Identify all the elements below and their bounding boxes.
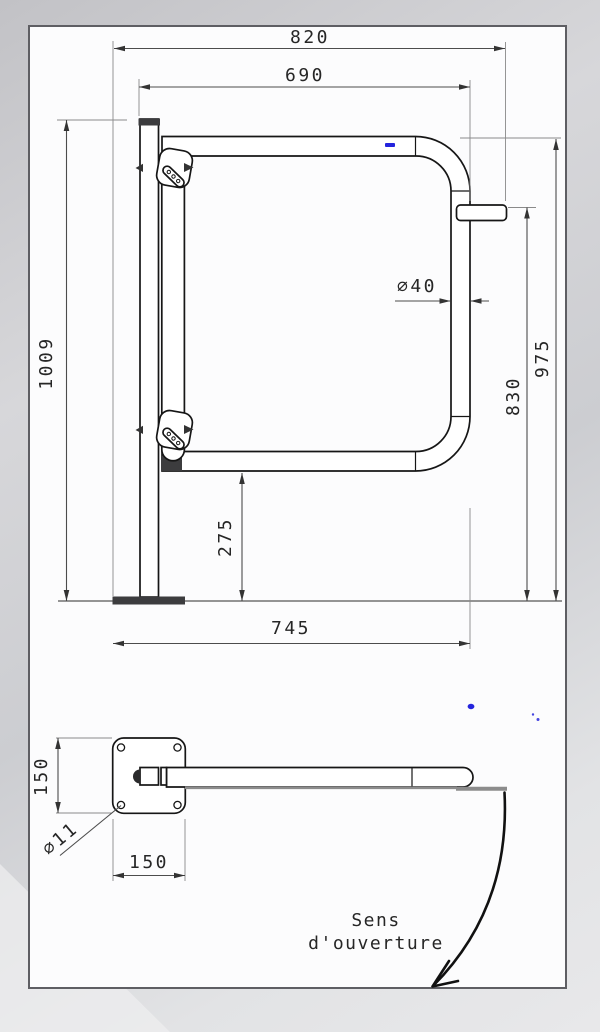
dim-text-d11: ⌀11 <box>38 818 82 860</box>
dim-text-150-left: 150 <box>31 756 52 796</box>
opening-direction-arrow <box>433 793 505 987</box>
gate-arm-plan <box>167 768 474 788</box>
dim-text-745: 745 <box>271 618 311 639</box>
post-section <box>140 768 159 786</box>
dim-plate-width: 150 <box>113 819 185 881</box>
blue-mark <box>385 143 395 147</box>
support-post <box>140 119 159 597</box>
blue-specks <box>468 704 540 721</box>
dim-text-975: 975 <box>532 338 553 378</box>
plan-view: 150 150 ⌀11 Sens <box>31 704 540 987</box>
drawing-canvas: 820 690 1009 9 <box>0 0 600 1032</box>
bolt-hole <box>174 744 181 751</box>
dim-clearance: 275 <box>215 473 245 601</box>
dim-plate-depth: 150 <box>31 738 112 813</box>
base-plate-side <box>113 597 186 605</box>
dim-tube-diameter: ⌀40 <box>395 276 489 304</box>
label-sens: Sens <box>351 910 400 931</box>
dim-base-span: 745 <box>113 508 470 649</box>
bolt-hole <box>174 801 181 808</box>
label-douverture: d'ouverture <box>308 933 444 954</box>
hole-callout: ⌀11 <box>38 806 121 860</box>
dim-text-1009: 1009 <box>36 336 57 389</box>
dim-height-latch: 830 <box>503 208 536 602</box>
dim-text-150-bottom: 150 <box>129 852 169 873</box>
opening-direction-label: Sens d'ouverture <box>308 910 444 954</box>
dim-text-820: 820 <box>290 27 330 48</box>
bolt-hole <box>117 744 124 751</box>
post-top-cap <box>139 119 161 126</box>
dim-text-830: 830 <box>503 376 524 416</box>
dim-text-d40: ⌀40 <box>397 276 437 297</box>
elevation-view: 820 690 1009 9 <box>36 27 562 649</box>
latch-keeper <box>457 205 507 221</box>
dim-text-690: 690 <box>285 65 325 86</box>
dim-text-275: 275 <box>215 517 236 557</box>
technical-drawing: 820 690 1009 9 <box>0 0 600 1032</box>
gate-frame-tube <box>162 137 470 472</box>
pivot-spacer <box>161 768 167 786</box>
